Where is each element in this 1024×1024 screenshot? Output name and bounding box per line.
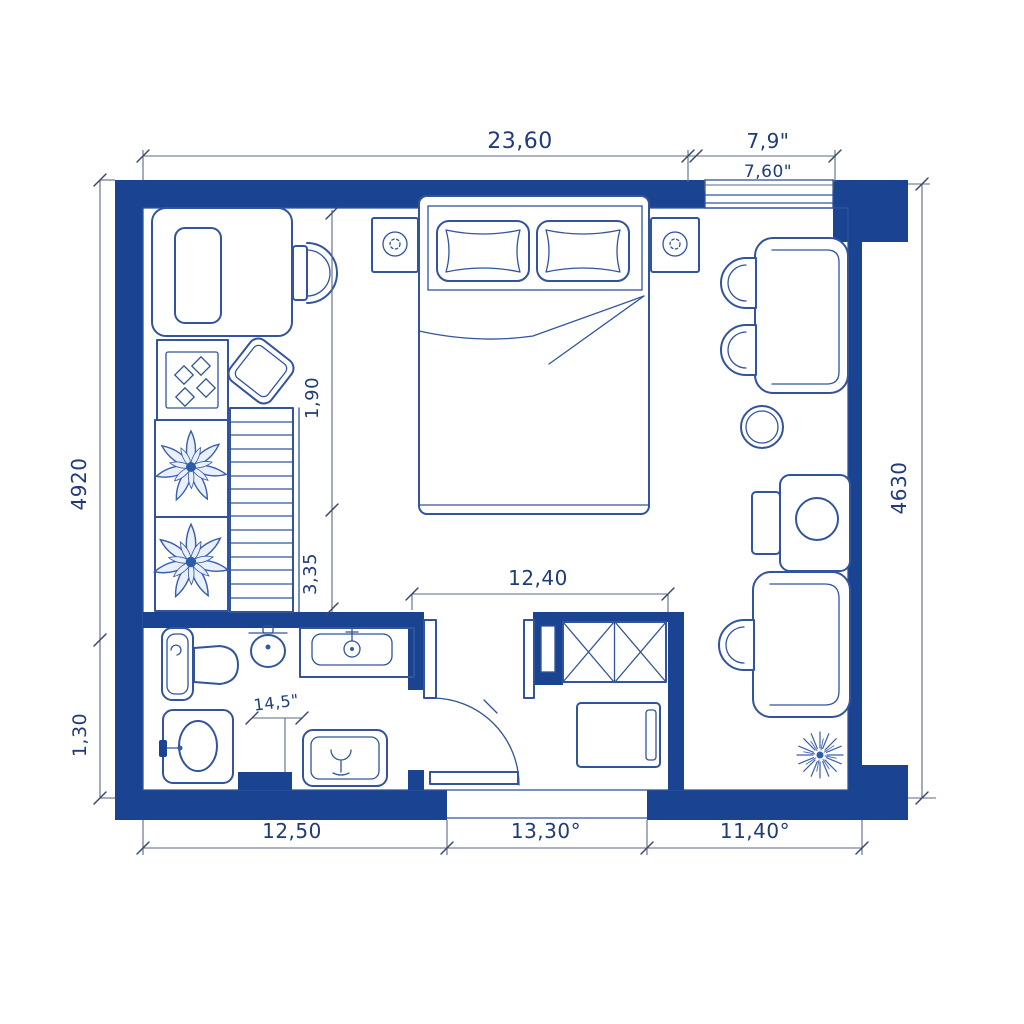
- round-stool: [741, 406, 783, 448]
- washbasin: [159, 710, 233, 783]
- vanity-sink: [300, 628, 414, 677]
- stove-hob: [157, 340, 228, 420]
- floor-plan-drawing: 23,60 7,9" 7,60" 4920 1,30 4630 12,50 13…: [0, 0, 1024, 1024]
- dining-chair-1: [721, 258, 756, 308]
- dim-left-lower: 1,30: [69, 713, 91, 757]
- plant-cell-lower: [153, 517, 229, 611]
- dim-right: 4630: [887, 178, 936, 804]
- work-desk: [752, 475, 850, 571]
- dining-chair-2: [721, 325, 756, 375]
- dim-right-height: 4630: [887, 462, 911, 515]
- stool: [225, 335, 298, 408]
- dim-bathroom: 14,5": [246, 690, 308, 772]
- dim-window-width: 7,9": [746, 129, 789, 153]
- desk: [152, 208, 292, 336]
- desk-chair: [293, 243, 337, 303]
- dim-bathroom-detail: 14,5": [253, 690, 300, 714]
- dandelion-plant-icon: [797, 732, 843, 778]
- staircase: [230, 408, 299, 612]
- nightstand-right: [651, 218, 699, 272]
- dim-interior-lower: 3,35: [300, 553, 321, 595]
- dim-bottom-left: 12,50: [262, 819, 322, 843]
- dim-hallway: 12,40: [406, 566, 674, 612]
- coffee-table: [753, 572, 850, 717]
- dim-left-height: 4920: [67, 458, 91, 511]
- dining-table: [755, 238, 848, 393]
- toilet: [162, 628, 238, 700]
- dim-bottom: 12,50 13,30° 11,40°: [137, 819, 868, 855]
- double-bed: [419, 196, 649, 514]
- nightstand-left: [372, 218, 418, 272]
- dim-bottom-center: 13,30°: [511, 819, 581, 843]
- potted-plant-icon: [153, 524, 229, 598]
- dim-interior-upper: 1,90: [302, 377, 323, 419]
- doormat: [577, 703, 660, 767]
- dim-hallway-width: 12,40: [508, 566, 568, 590]
- dim-window-width-inner: 7,60": [744, 162, 792, 182]
- dim-left: 4920 1,30: [67, 174, 115, 804]
- hall-door-leaf: [524, 620, 534, 698]
- entry-door-swing: [424, 620, 519, 785]
- floor-plan-sheet: 23,60 7,9" 7,60" 4920 1,30 4630 12,50 13…: [0, 0, 1024, 1024]
- pedestal-sink: [249, 626, 287, 667]
- shower-tray: [303, 730, 387, 786]
- coffee-chair: [719, 620, 754, 670]
- dim-bottom-right: 11,40°: [720, 819, 790, 843]
- dim-top-width: 23,60: [487, 129, 552, 154]
- window-opening: [705, 180, 833, 208]
- potted-plant-icon: [155, 431, 227, 502]
- plant-cell-upper: [155, 420, 228, 517]
